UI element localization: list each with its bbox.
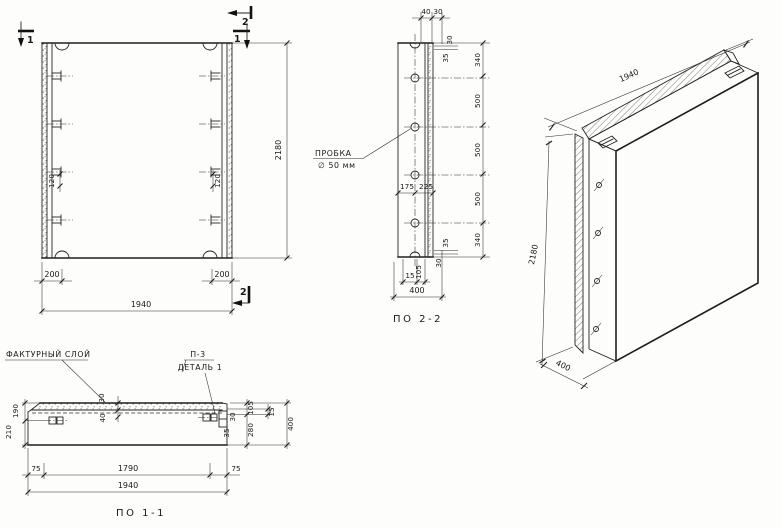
- dim-30-layer: 30: [97, 393, 106, 403]
- dim-30-right-bottom: 30: [434, 258, 443, 268]
- facing-layer-callout: ФАКТУРНЫЙ СЛОЙ: [5, 350, 105, 402]
- iso-dim-400: 400: [554, 358, 572, 373]
- detail-label-line1: П-3: [190, 350, 205, 359]
- dim-bottom-front: 200 200 1940: [34, 262, 240, 315]
- dim-200-right: 200: [214, 270, 229, 279]
- dim-30-detail: 30: [228, 412, 237, 422]
- dim-right-bottom-small: 35 30: [434, 238, 458, 267]
- facing-layer-label: ФАКТУРНЫЙ СЛОЙ: [6, 350, 91, 359]
- marker-1b-label: 1: [234, 34, 241, 45]
- dim-1940-section1: 1940: [118, 481, 138, 490]
- dim-400-section2: 400: [409, 286, 424, 295]
- dim-340-top: 340: [473, 53, 482, 67]
- marker-2-label: 2: [242, 17, 249, 28]
- lifting-slot-left: [598, 136, 617, 148]
- dim-anchor-offset-left: 120: [47, 170, 63, 192]
- dim-40-top: 40: [421, 7, 431, 16]
- dim-190: 190: [11, 404, 20, 418]
- iso-dim-depth: 400: [540, 358, 616, 389]
- detail-p3-element: [219, 411, 227, 427]
- dim-500-3: 500: [473, 192, 482, 206]
- anchor-left-section: [25, 417, 68, 424]
- dim-anchor-offset-right: 120: [211, 170, 223, 192]
- dim-1940-front: 1940: [131, 300, 151, 309]
- section-marker-2-bottom: 2: [232, 286, 249, 306]
- anchor-symbols-right: [199, 71, 225, 225]
- panel-drawing-svg: 120 120 2180 200 200 1940 1: [0, 0, 781, 528]
- plug-marks: [591, 179, 604, 335]
- dim-right-top-small: 30 35: [434, 35, 458, 63]
- front-view: 120 120 2180 200 200 1940 1: [18, 6, 292, 315]
- dim-280-right: 280: [246, 423, 255, 437]
- dim-35-right-bottom: 35: [441, 238, 450, 247]
- lifting-slot-right: [725, 66, 744, 78]
- dim-40-layer: 40: [98, 413, 107, 423]
- dim-35-right-top: 35: [441, 53, 450, 62]
- plug-label: ПРОБКА: [315, 149, 352, 158]
- dim-105-bottom: 105: [414, 265, 423, 279]
- dim-175: 175: [400, 182, 414, 191]
- dim-left-section1: 190 210: [4, 399, 40, 449]
- dim-75-right: 75: [231, 464, 240, 473]
- marker-1-label: 1: [27, 35, 34, 46]
- dim-bottom-section1: 75 1790 75 1940: [22, 448, 241, 496]
- dim-height-2180: 2180: [232, 41, 292, 261]
- dim-500-1: 500: [473, 94, 482, 108]
- anchor-right-section: [198, 414, 218, 421]
- iso-dim-height: 2180: [527, 134, 573, 365]
- dim-400-right: 400: [286, 417, 295, 431]
- dim-210: 210: [4, 425, 13, 439]
- dim-200-left: 200: [44, 270, 59, 279]
- section-marker-1-top-left: 1: [18, 22, 34, 47]
- section-1-1-view: ФАКТУРНЫЙ СЛОЙ П-3 ДЕТАЛЬ 1 30 40 190 21…: [4, 350, 295, 519]
- dim-2180: 2180: [274, 140, 283, 160]
- dim-chain-height: 340 500 500 500 340: [433, 41, 490, 260]
- dim-1790: 1790: [118, 464, 138, 473]
- dim-120-left: 120: [47, 174, 56, 188]
- isometric-view: 1940 2180 400: [527, 39, 758, 389]
- plug-diameter-label: ∅ 50 мм: [318, 161, 356, 170]
- section-2-2-view: 40 30 30 35 35 30 340 500 500 500 340 17…: [313, 7, 490, 325]
- technical-drawing-sheet: 120 120 2180 200 200 1940 1: [0, 0, 781, 528]
- marker-2b-label: 2: [240, 287, 247, 298]
- dim-120-right: 120: [213, 174, 222, 188]
- iso-dim-2180: 2180: [527, 244, 540, 266]
- dim-right-section1: 105 15 280 400 30 35: [222, 399, 295, 449]
- plug-callout: ПРОБКА ∅ 50 мм: [313, 129, 411, 171]
- iso-dim-1940: 1940: [618, 67, 640, 84]
- section-2-2-caption: ПО 2-2: [393, 314, 443, 325]
- dim-105-right: 105: [246, 401, 255, 415]
- dim-30-top: 30: [433, 7, 443, 16]
- dim-75-left: 75: [31, 464, 40, 473]
- section-1-1-caption: ПО 1-1: [116, 508, 166, 519]
- dim-15-right: 15: [267, 407, 276, 416]
- dim-500-2: 500: [473, 143, 482, 157]
- anchor-symbols-left: [47, 71, 73, 225]
- dim-340-bottom: 340: [473, 233, 482, 247]
- dim-35-detail: 35: [222, 428, 231, 437]
- dim-225: 225: [419, 182, 433, 191]
